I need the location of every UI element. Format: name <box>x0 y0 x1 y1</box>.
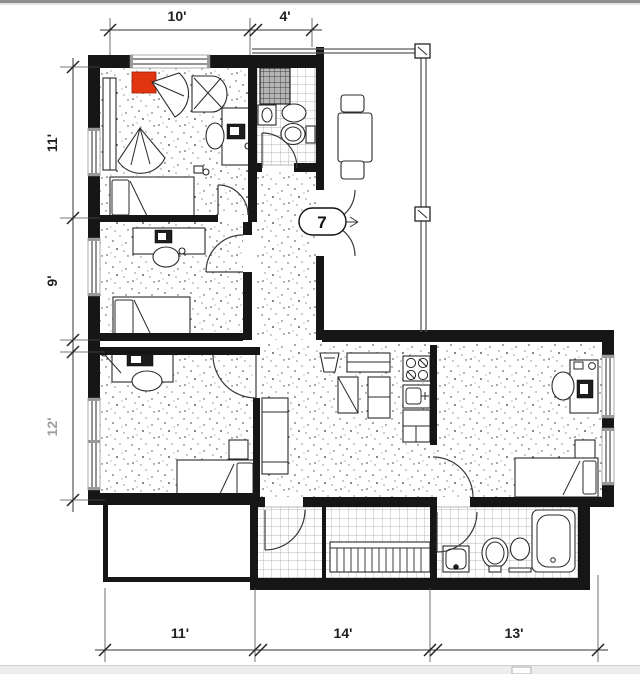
table-symbol <box>338 113 372 162</box>
bottom-scrollbar-track[interactable] <box>0 666 640 674</box>
bed-symbol <box>113 297 190 337</box>
window-symbol <box>88 238 100 296</box>
dim-label-top-4ft: 4' <box>279 8 290 24</box>
window-symbol <box>88 128 100 176</box>
chair-symbol <box>153 247 179 267</box>
bench-symbol <box>330 542 430 572</box>
dim-label-bottom-11ft: 11' <box>171 625 189 641</box>
window-symbol <box>602 428 614 485</box>
chair-symbol <box>206 123 224 149</box>
wardrobe-symbol <box>262 398 288 474</box>
dim-label-left-11ft: 11' <box>44 134 60 152</box>
dim-label-bottom-13ft: 13' <box>505 625 524 641</box>
window-symbol <box>602 355 614 418</box>
pedestal-sink-symbol <box>511 538 530 560</box>
chair-symbol <box>341 161 364 179</box>
nightstand-symbol <box>229 440 248 459</box>
window-symbol <box>130 55 210 68</box>
nightstand-symbol <box>575 440 595 460</box>
door-tag: 7 <box>299 208 358 235</box>
door-tag-number: 7 <box>317 213 326 232</box>
window-symbol <box>88 398 100 490</box>
chair-symbol <box>132 371 162 391</box>
top-edge-bar <box>0 0 640 3</box>
dim-label-top-10ft: 10' <box>168 8 187 24</box>
bottom-scrollbar-thumb[interactable] <box>512 667 531 674</box>
dim-label-bottom-14ft: 14' <box>334 625 353 641</box>
bottom-edge-line <box>0 665 640 666</box>
phone-symbol <box>194 166 203 173</box>
top-edge-highlight <box>0 3 640 5</box>
toilet-tank-symbol <box>306 126 315 143</box>
bed-symbol <box>110 177 194 218</box>
balcony-furniture <box>338 95 372 179</box>
bed-symbol <box>515 458 598 497</box>
washbasin-symbol <box>320 353 339 372</box>
dim-label-left-12ft: 12' <box>44 418 60 437</box>
hall-upper-floor <box>257 172 316 340</box>
patio-wall <box>103 577 257 582</box>
chair-symbol <box>552 372 574 400</box>
shower-symbol <box>260 68 290 104</box>
patio-wall <box>103 505 108 580</box>
dim-label-left-9ft: 9' <box>44 275 60 286</box>
chair-symbol <box>341 95 364 112</box>
bidet-symbol <box>282 104 306 122</box>
floor-plan-canvas: 10' 4' 11' 9' 12' 11' 14' 13' <box>0 0 640 674</box>
dimension-chain-top: 10' 4' <box>100 8 322 55</box>
